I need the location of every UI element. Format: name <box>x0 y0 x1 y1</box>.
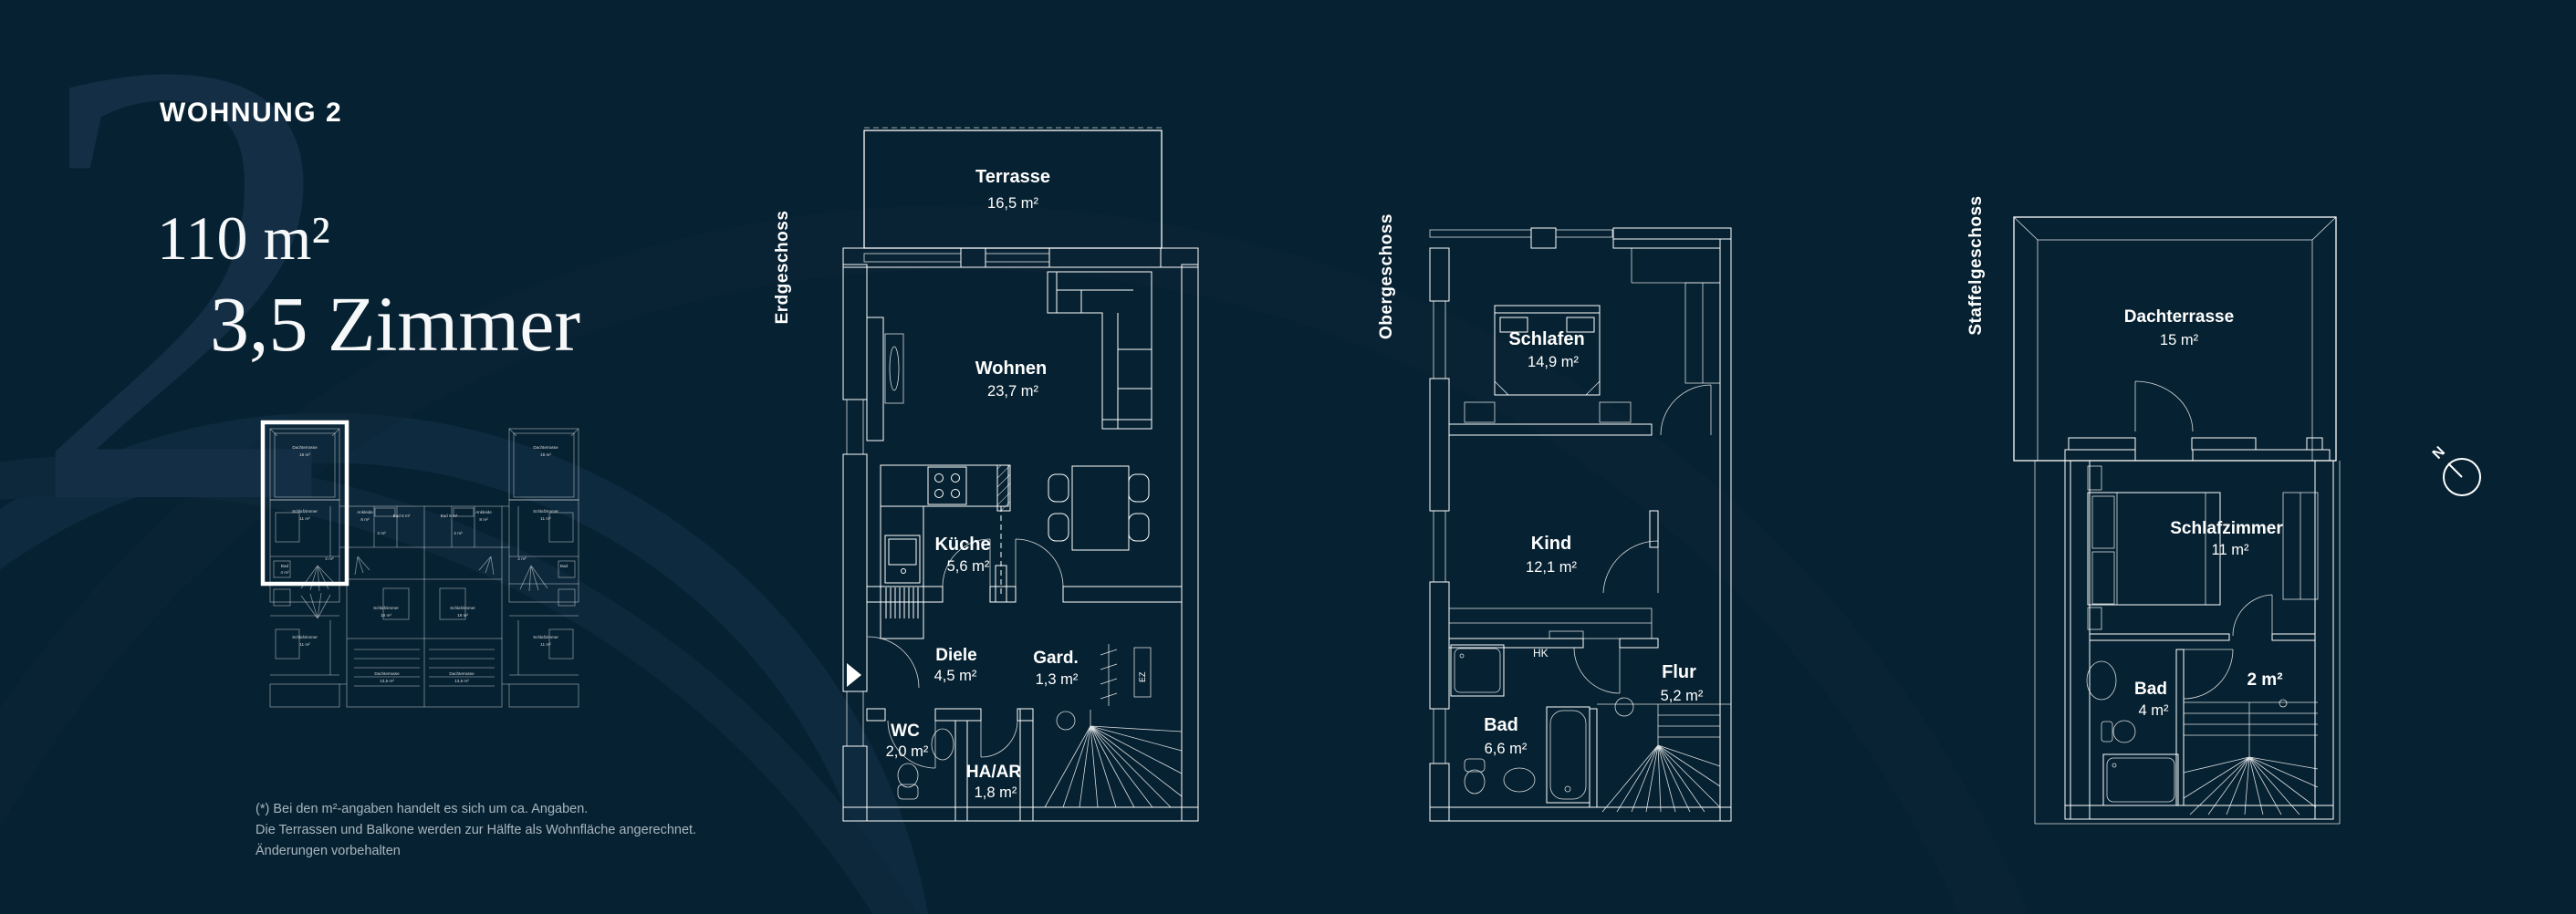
svg-text:11 m²: 11 m² <box>299 642 310 647</box>
exterior-wall-top <box>843 248 1198 267</box>
kind-wardrobe <box>1449 608 1652 639</box>
mini-plan-lines <box>270 429 579 707</box>
footnote-line-3: Änderungen vorbehalten <box>256 841 696 862</box>
footnote-line-2: Die Terrassen und Balkone werden zur Häl… <box>256 820 696 841</box>
bad-fixtures <box>1451 645 1590 803</box>
kind-door <box>1603 511 1658 593</box>
svg-text:HK: HK <box>1533 647 1549 660</box>
erdgeschoss-plan: EZ Terrasse 16,5 m² Wohn <box>789 126 1205 830</box>
coat-rack <box>1100 644 1117 706</box>
kind-bad-wall: HK <box>1449 631 1658 693</box>
svg-text:Dachterrasse: Dachterrasse <box>292 445 318 450</box>
svg-text:Schlafzimmer: Schlafzimmer <box>450 606 475 610</box>
bad-divider <box>2176 649 2233 805</box>
exterior-wall-left <box>1430 248 1449 821</box>
room-area-gard: 1,3 m² <box>1036 671 1079 688</box>
sideboard <box>867 317 903 441</box>
compass-north-label: N <box>2430 444 2448 462</box>
room-label-wohnen: Wohnen <box>975 358 1048 379</box>
room-label-diele: Diele <box>935 646 976 665</box>
bad-stair-wall <box>1590 709 1597 807</box>
room-area-treppenflur: 2 m² <box>2247 670 2282 690</box>
svg-text:18 m²: 18 m² <box>457 613 468 618</box>
room-area-dachterrasse: 15 m² <box>2160 332 2199 348</box>
schlafzimmer-door <box>2090 595 2315 640</box>
mini-overview-plan: Dachterrasse 15 m² Schlafzimmer 11 m² Ba… <box>246 410 602 721</box>
room-label-terrasse: Terrasse <box>975 167 1050 187</box>
room-area-kueche: 5,6 m² <box>947 558 990 575</box>
svg-text:15 m²: 15 m² <box>299 452 310 457</box>
room-label-kueche: Küche <box>934 535 990 555</box>
room-area-terrasse: 16,5 m² <box>987 195 1038 212</box>
compass-needle <box>2448 463 2462 477</box>
footnote-line-1: (*) Bei den m²-angaben handelt es sich u… <box>256 799 696 820</box>
dining-table <box>1048 466 1149 550</box>
svg-text:Schlafzimmer: Schlafzimmer <box>373 606 399 610</box>
apartment-size: 110 m² <box>157 203 330 275</box>
svg-text:11 m²: 11 m² <box>299 516 310 521</box>
room-area-kind: 12,1 m² <box>1526 559 1577 576</box>
svg-text:8 m²: 8 m² <box>360 517 370 522</box>
room-label-haar: HA/AR <box>966 763 1021 782</box>
svg-text:2 m²: 2 m² <box>454 531 463 535</box>
room-area-schlafen: 14,9 m² <box>1528 354 1579 370</box>
compass: N <box>2418 429 2519 529</box>
svg-text:18 m²: 18 m² <box>381 613 391 618</box>
wardrobe <box>1632 248 1720 383</box>
svg-text:2 m²: 2 m² <box>377 531 386 535</box>
room-label-schlafzimmer: Schlafzimmer <box>2170 519 2283 538</box>
svg-text:11 m²: 11 m² <box>540 642 551 647</box>
apartment-rooms: 3,5 Zimmer <box>210 278 580 369</box>
exterior-wall-bottom <box>1430 807 1731 821</box>
exterior-wall-top <box>2065 438 2330 461</box>
room-area-diele: 4,5 m² <box>934 668 977 684</box>
room-area-bad: 6,6 m² <box>1485 741 1528 757</box>
exterior-wall-right <box>1182 265 1198 821</box>
double-bed <box>2088 466 2220 629</box>
entrance-arrow-icon <box>847 663 861 687</box>
stairs <box>2184 700 2318 815</box>
svg-text:Schlafzimmer: Schlafzimmer <box>292 509 318 514</box>
svg-text:Ankleide: Ankleide <box>357 510 373 514</box>
room-label-bad: Bad <box>2134 680 2167 699</box>
exterior-wall-right <box>1720 239 1731 821</box>
svg-text:Dachterrasse: Dachterrasse <box>533 445 558 450</box>
svg-text:13,5 m²: 13,5 m² <box>454 679 469 683</box>
brochure-page: 2 WOHNUNG 2 110 m² 3,5 Zimmer <box>0 0 2576 914</box>
sofa <box>1048 272 1152 429</box>
room-label-gard: Gard. <box>1033 649 1079 668</box>
room-area-wohnen: 23,7 m² <box>987 383 1038 400</box>
room-label-bad: Bad <box>1484 715 1518 735</box>
hall-divider-wall <box>867 539 1182 602</box>
svg-text:Ankleide: Ankleide <box>475 510 492 514</box>
svg-text:8 m²: 8 m² <box>479 517 488 522</box>
entry-door-arc <box>868 637 919 688</box>
wardrobe <box>2283 493 2318 599</box>
svg-text:2 m²: 2 m² <box>517 556 527 561</box>
schlafen-kind-wall <box>1449 385 1711 435</box>
floor-label-obergeschoss: Obergeschoss <box>1377 194 1397 358</box>
room-label-wc: WC <box>891 722 920 741</box>
stairs <box>1045 710 1182 807</box>
svg-text:Bad: Bad <box>560 564 568 568</box>
room-label-dachterrasse: Dachterrasse <box>2124 307 2234 327</box>
exterior-wall-left <box>843 265 867 821</box>
exterior-wall-top <box>1430 228 1731 248</box>
stairs <box>1597 698 1731 812</box>
roof-edge-lines <box>2035 461 2340 824</box>
room-area-bad: 4 m² <box>2139 702 2170 719</box>
page-title: WOHNUNG 2 <box>160 98 342 129</box>
footnote: (*) Bei den m²-angaben handelt es sich u… <box>256 799 696 862</box>
terrace-deck <box>864 128 1162 248</box>
room-area-schlafzimmer: 11 m² <box>2212 542 2249 558</box>
svg-text:Bad 6 m²: Bad 6 m² <box>441 514 458 518</box>
svg-text:Schlafzimmer: Schlafzimmer <box>533 509 558 514</box>
svg-text:Bad: Bad <box>281 564 289 568</box>
svg-text:4 m²: 4 m² <box>280 570 289 575</box>
svg-text:Dachterrasse: Dachterrasse <box>449 671 475 676</box>
staffelgeschoss-plan: Dachterrasse 15 m² Schlafzimmer 11 m² Ba… <box>2008 205 2345 830</box>
room-label-schlafen: Schlafen <box>1508 329 1584 349</box>
ez-box: EZ <box>1134 648 1151 697</box>
svg-text:Schlafzimmer: Schlafzimmer <box>292 635 318 639</box>
floor-label-staffelgeschoss: Staffelgeschoss <box>1966 183 1987 348</box>
room-area-haar: 1,8 m² <box>975 784 1017 801</box>
obergeschoss-plan: HK Schlafen 14,9 m² Kind <box>1424 219 1743 830</box>
svg-text:2 m²: 2 m² <box>325 556 334 561</box>
svg-text:EZ: EZ <box>1138 671 1147 682</box>
svg-text:Dachterrasse: Dachterrasse <box>374 671 400 676</box>
room-area-flur: 5,2 m² <box>1661 688 1704 704</box>
room-label-kind: Kind <box>1531 534 1571 554</box>
room-label-flur: Flur <box>1662 662 1696 682</box>
room-area-wc: 2,0 m² <box>886 743 929 760</box>
svg-text:Schlafzimmer: Schlafzimmer <box>533 635 558 639</box>
svg-text:11 m²: 11 m² <box>540 516 551 521</box>
svg-text:Bad 6 m²: Bad 6 m² <box>393 514 411 518</box>
svg-text:13,5 m²: 13,5 m² <box>380 679 394 683</box>
svg-text:15 m²: 15 m² <box>540 452 551 457</box>
